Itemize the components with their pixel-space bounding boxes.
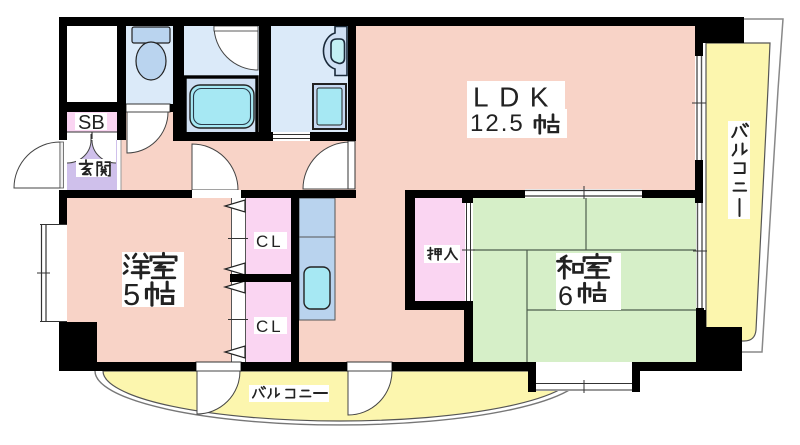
svg-text:CL: CL bbox=[256, 317, 283, 336]
svg-text:5: 5 bbox=[123, 277, 140, 312]
svg-text:12.5: 12.5 bbox=[470, 110, 525, 137]
svg-text:SB: SB bbox=[78, 112, 105, 134]
svg-text:6: 6 bbox=[558, 281, 573, 311]
svg-text:LDK: LDK bbox=[473, 82, 559, 113]
svg-text:CL: CL bbox=[256, 232, 283, 251]
